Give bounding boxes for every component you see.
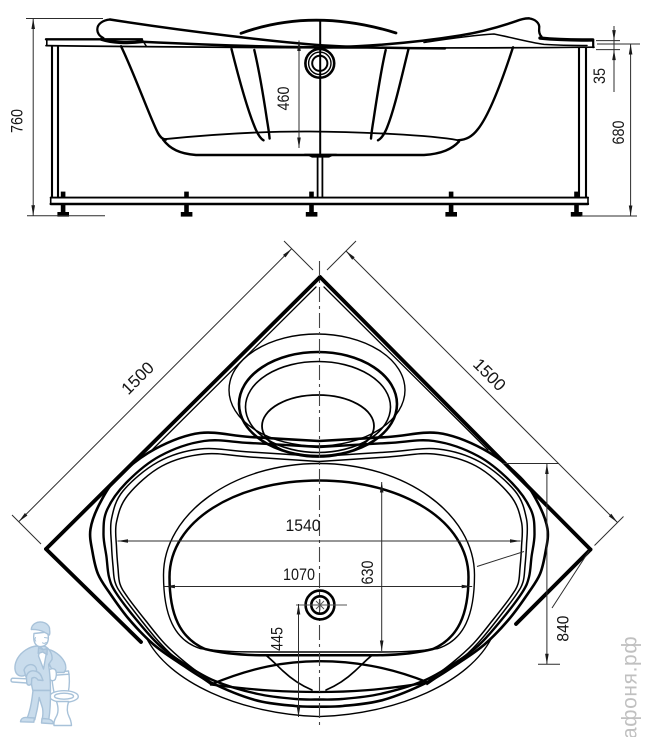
svg-text:630: 630 xyxy=(358,561,377,585)
svg-text:840: 840 xyxy=(554,616,573,642)
svg-text:1500: 1500 xyxy=(469,355,509,395)
svg-text:1540: 1540 xyxy=(286,516,321,535)
svg-text:1070: 1070 xyxy=(283,565,315,584)
svg-text:445: 445 xyxy=(268,627,287,651)
svg-text:35: 35 xyxy=(590,68,609,84)
svg-text:680: 680 xyxy=(609,121,628,145)
svg-text:460: 460 xyxy=(274,87,293,111)
svg-text:760: 760 xyxy=(8,109,27,133)
svg-text:афоня.рф: афоня.рф xyxy=(619,636,642,737)
svg-text:1500: 1500 xyxy=(118,358,158,398)
